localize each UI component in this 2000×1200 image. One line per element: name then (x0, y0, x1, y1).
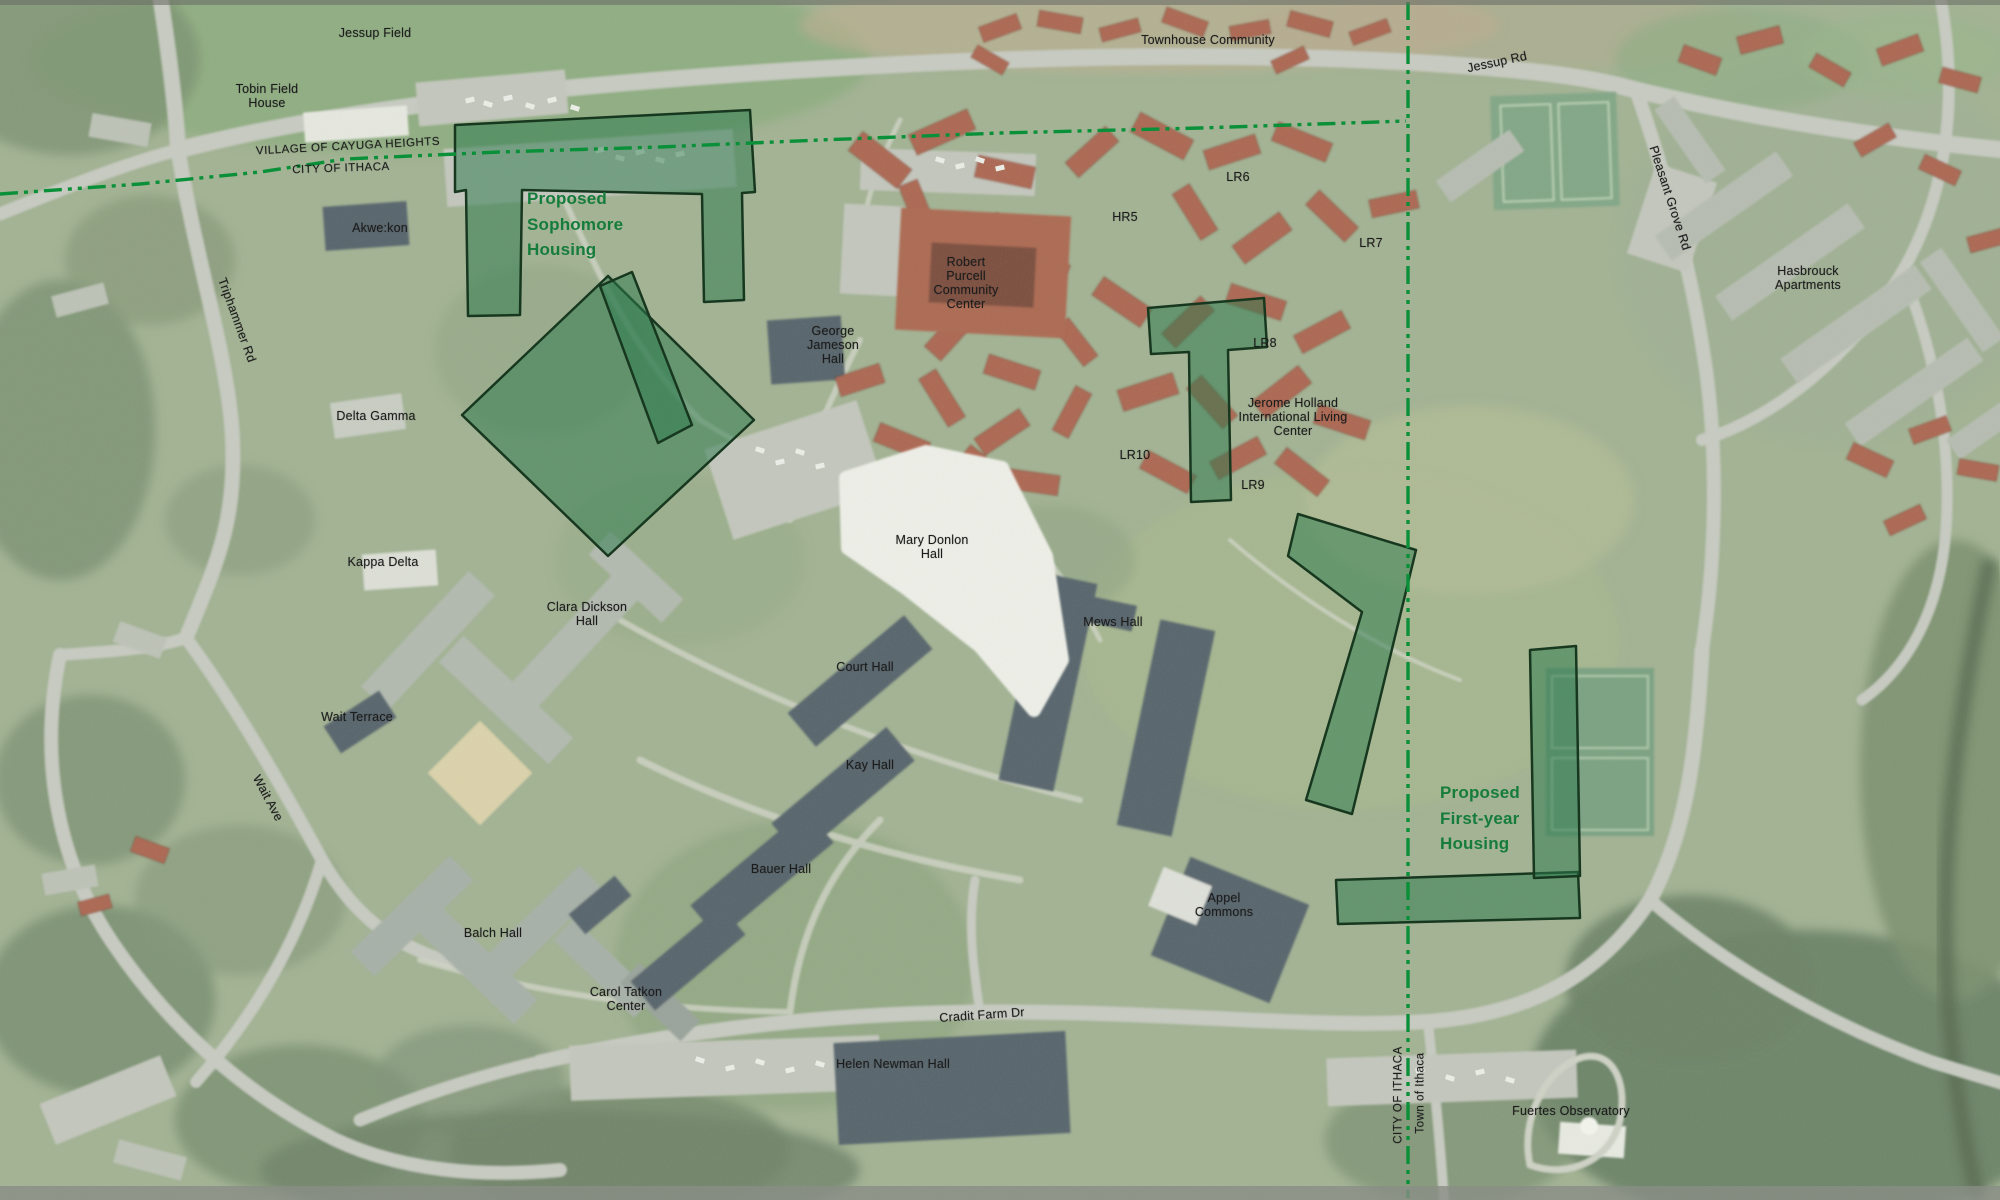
photo-edge-bottom (0, 1186, 2000, 1200)
proposed-site-polygon (1336, 872, 1580, 924)
photo-edge-top (0, 0, 2000, 5)
proposed-site-polygon (1530, 646, 1580, 878)
photo-grain (0, 0, 2000, 1200)
map-canvas (0, 0, 2000, 1200)
campus-aerial-map: Jessup FieldTobin Field HouseVILLAGE OF … (0, 0, 2000, 1200)
